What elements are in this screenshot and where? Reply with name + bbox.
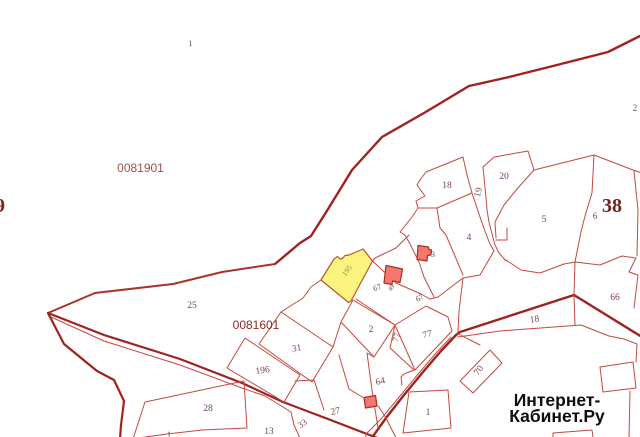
svg-text:0081601: 0081601: [233, 318, 280, 332]
svg-text:13: 13: [264, 427, 274, 437]
svg-text:25: 25: [187, 301, 197, 311]
svg-text:66: 66: [610, 293, 620, 303]
svg-text:3: 3: [431, 250, 435, 259]
svg-text:38: 38: [602, 195, 622, 217]
svg-text:4: 4: [467, 233, 472, 243]
svg-text:20: 20: [499, 172, 509, 182]
svg-text:5: 5: [542, 215, 547, 225]
svg-text:28: 28: [203, 404, 213, 414]
svg-text:2: 2: [369, 325, 374, 335]
svg-text:1: 1: [189, 39, 193, 48]
svg-text:18: 18: [529, 314, 540, 325]
svg-text:196: 196: [255, 365, 271, 377]
svg-text:1: 1: [426, 408, 431, 418]
svg-text:6: 6: [593, 211, 598, 221]
svg-text:9: 9: [0, 195, 5, 217]
svg-text:0081901: 0081901: [117, 161, 164, 175]
svg-text:1: 1: [167, 430, 172, 437]
svg-text:31: 31: [291, 343, 302, 354]
svg-text:18: 18: [442, 181, 452, 191]
svg-text:2: 2: [633, 103, 638, 113]
